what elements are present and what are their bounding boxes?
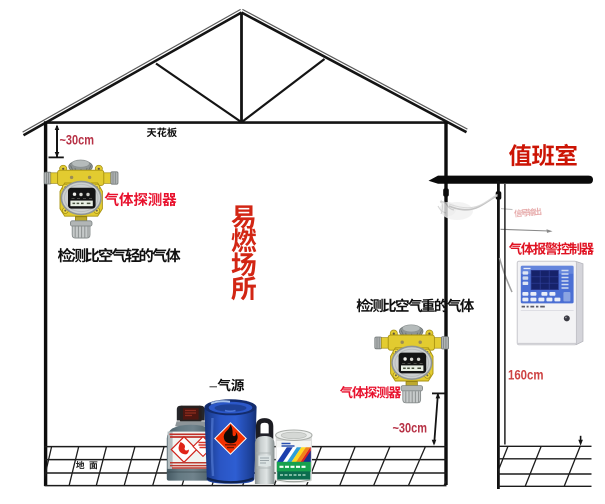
svg-text:~30cm: ~30cm xyxy=(60,132,95,147)
svg-text:~30cm: ~30cm xyxy=(393,421,428,436)
svg-text:160cm: 160cm xyxy=(508,367,544,382)
